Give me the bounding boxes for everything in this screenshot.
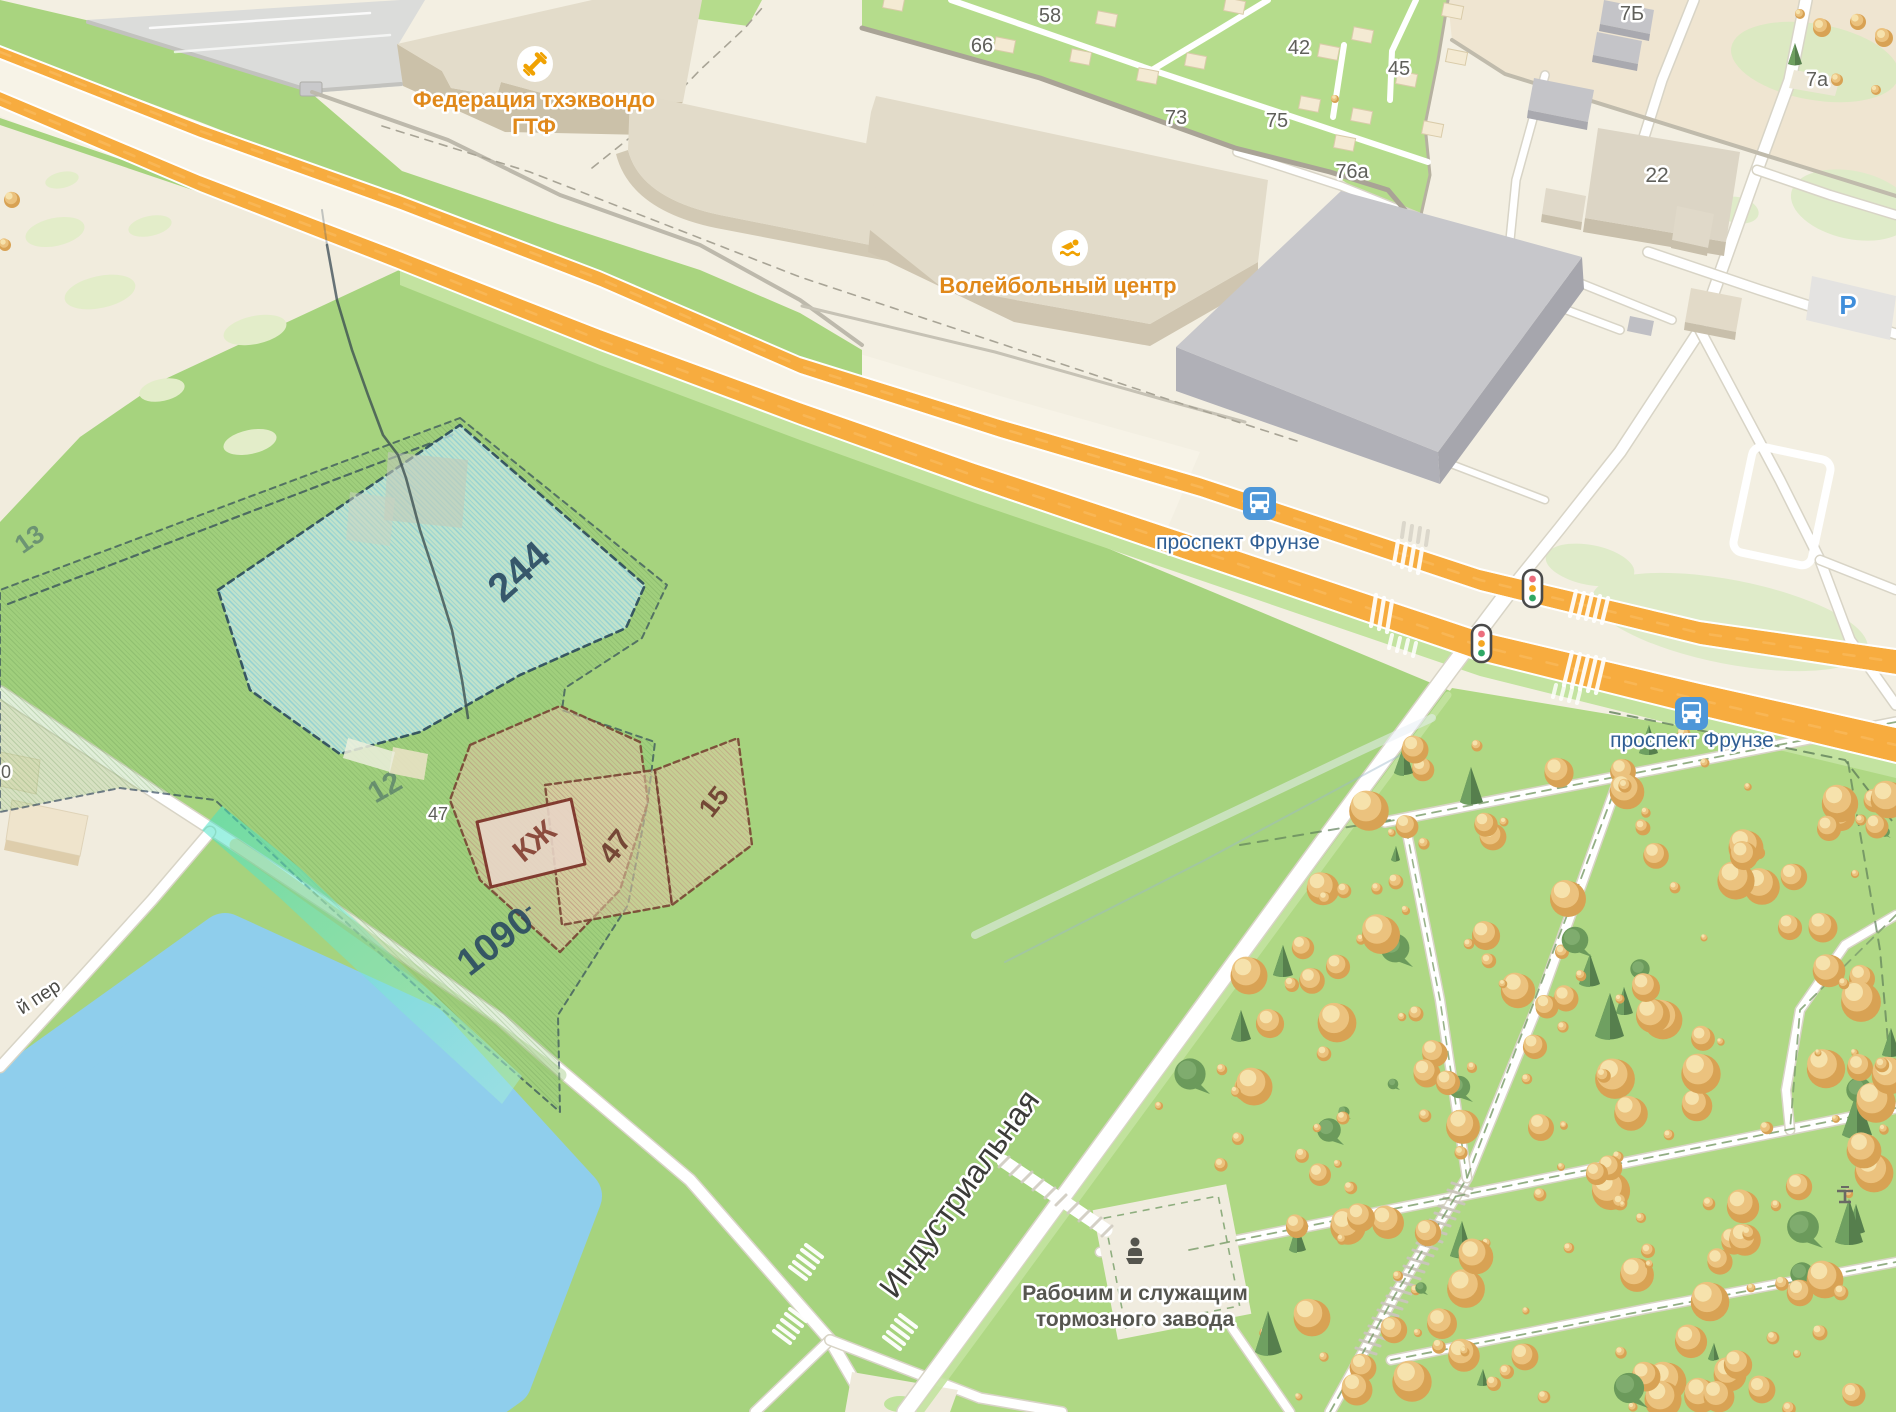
svg-text:66: 66: [971, 35, 993, 57]
svg-text:тормозного завода: тормозного завода: [1036, 1308, 1235, 1331]
svg-text:Волейбольный центр: Волейбольный центр: [939, 273, 1176, 298]
svg-text:0: 0: [1, 762, 11, 782]
svg-text:проспект Фрунзе: проспект Фрунзе: [1156, 531, 1320, 554]
svg-text:7а: 7а: [1806, 69, 1829, 91]
svg-text:Федерация тхэквондо: Федерация тхэквондо: [413, 87, 655, 112]
svg-text:ГТФ: ГТФ: [512, 114, 556, 139]
svg-text:Рабочим и служащим: Рабочим и служащим: [1022, 1282, 1248, 1305]
svg-text:Р: Р: [1839, 290, 1856, 320]
svg-text:75: 75: [1266, 110, 1288, 132]
svg-text:47: 47: [428, 804, 448, 824]
svg-text:76а: 76а: [1335, 161, 1369, 183]
svg-text:42: 42: [1288, 37, 1310, 59]
svg-text:7Б: 7Б: [1620, 3, 1644, 25]
svg-text:проспект Фрунзе: проспект Фрунзе: [1610, 729, 1774, 752]
svg-text:22: 22: [1645, 164, 1668, 187]
svg-text:58: 58: [1039, 5, 1061, 27]
svg-text:73: 73: [1165, 107, 1187, 129]
svg-text:45: 45: [1388, 58, 1410, 80]
